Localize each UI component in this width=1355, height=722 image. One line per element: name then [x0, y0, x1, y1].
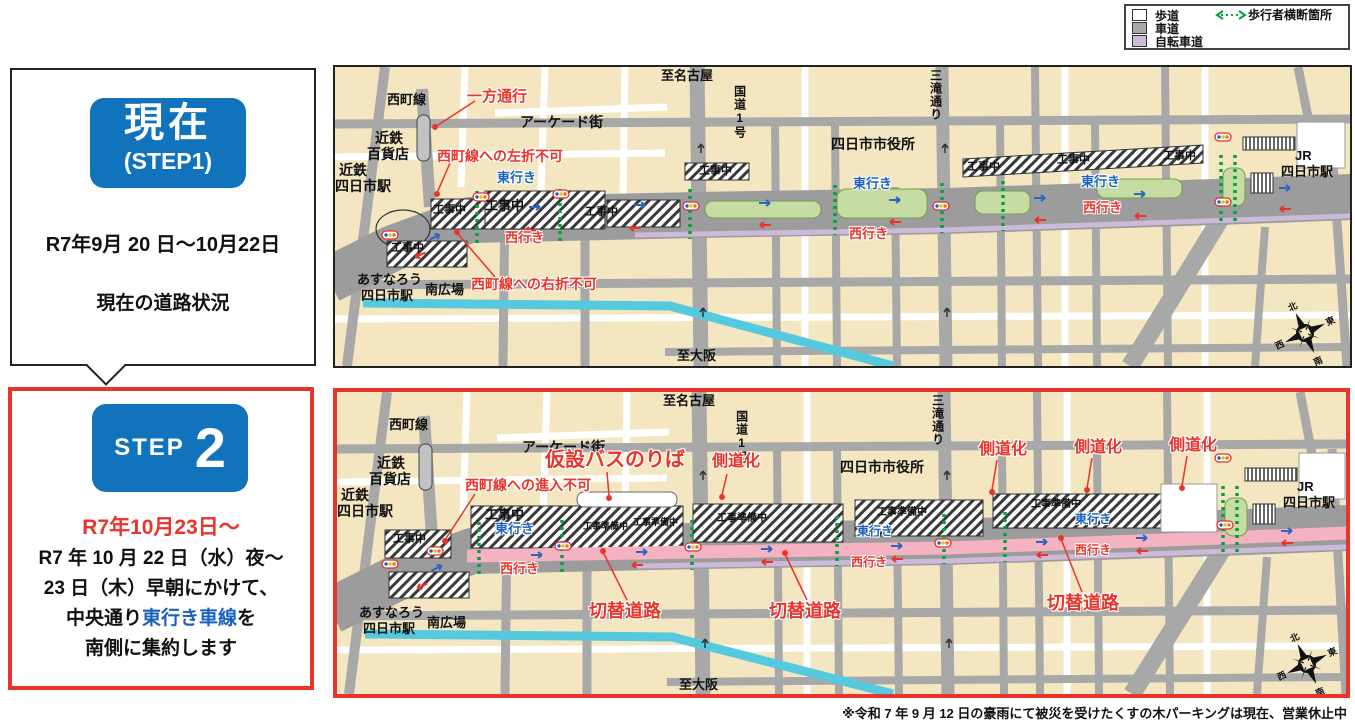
eastbound-label: 東行き	[1075, 513, 1111, 526]
bikelane-swatch	[1132, 35, 1147, 47]
side-road-label: 側道化	[1169, 438, 1217, 455]
westbound-label: 西行き	[1075, 544, 1111, 557]
street-island	[419, 444, 432, 490]
temp-bus-stop-label: 仮設バスのりば	[545, 450, 685, 471]
kintetsu-station-label2: 四日市駅	[337, 504, 393, 519]
city-hall-label: 四日市市役所	[831, 137, 915, 152]
arcade-label: アーケード街	[520, 115, 603, 130]
eastbound-label: 東行き	[495, 522, 534, 536]
kintetsu-station-label: 近鉄	[341, 488, 369, 503]
step1-callout: 現在 (STEP1) R7年9月 20 日～10月22日 現在の道路状況	[10, 68, 316, 366]
jr-platform	[1253, 504, 1275, 524]
westbound-label: 西行き	[849, 227, 888, 241]
no-right-turn-label: 西町線への右折不可	[471, 277, 597, 292]
legend-row-sidewalk: 歩道	[1132, 9, 1179, 22]
legend-label: 歩行者横断箇所	[1248, 8, 1332, 22]
step2-line2: 23 日（木）早朝にかけて、	[12, 574, 310, 604]
step2-description: R7 年 10 月 22 日（水）夜～ 23 日（木）早朝にかけて、 中央通り東…	[12, 544, 310, 664]
switch-road-label: 切替道路	[1047, 594, 1119, 613]
kintetsu-station-label: 近鉄	[339, 163, 367, 178]
jr-station-label: 四日市駅	[1281, 165, 1333, 179]
step1-description: 現在の道路状況	[12, 288, 314, 315]
to-osaka-label: 至大阪	[677, 349, 716, 363]
asunarou-label: あすなろう	[359, 606, 424, 620]
jr-platform	[1251, 173, 1273, 193]
step2-period: R7年10月23日～	[12, 511, 310, 541]
nishimachi-line-label: 西町線	[387, 93, 426, 107]
step2-line3: 中央通り東行き車線を	[12, 604, 310, 634]
eastbound-label: 東行き	[1081, 175, 1120, 189]
side-road-label: 側道化	[712, 454, 760, 471]
kintetsu-dept-label: 近鉄	[377, 456, 405, 471]
legend: 歩道 車道 自転車道 歩行者横断箇所	[1124, 4, 1350, 50]
crossing-arrow-icon	[1214, 9, 1248, 21]
footnote: ※令和 7 年 9 月 12 日の豪雨にて被災を受けたくすの木パーキングは現在、…	[842, 703, 1347, 722]
eastbound-label: 東行き	[857, 525, 893, 538]
step2-badge-num: 2	[195, 416, 226, 479]
westbound-label: 西行き	[851, 556, 887, 569]
kintetsu-dept-label2: 百貨店	[367, 147, 409, 162]
asunarou-label2: 四日市駅	[361, 289, 413, 303]
construction-label: 工事中	[391, 243, 424, 255]
construction-label: 工事中	[485, 199, 524, 213]
map-step2: 北 東 南 西 西町線 アーケード街 近鉄 百貨店 近鉄 四日市駅 あすなろう …	[333, 388, 1350, 698]
city-hall-label: 四日市市役所	[840, 460, 924, 475]
construction-label: 工事中	[393, 534, 426, 546]
map-step1: 北 東 南 西 西町線 アーケード街 近鉄 百貨店 近鉄 四日市駅 あすなろう …	[333, 65, 1352, 368]
step1-period: R7年9月 20 日～10月22日	[12, 228, 314, 257]
construction-label: 工事中	[967, 162, 1000, 174]
construction-label: 工事中	[585, 207, 618, 219]
westbound-label: 西行き	[505, 231, 544, 245]
closed-parking-block	[1161, 484, 1217, 532]
construction-label: 工事中	[1057, 155, 1090, 167]
construction-label: 工事中	[1163, 151, 1196, 163]
page: 歩道 車道 自転車道 歩行者横断箇所 現在 (STEP1) R7年9月 20 日…	[0, 0, 1355, 722]
construction-prep-label: 工事準備中	[1031, 500, 1081, 511]
temp-bus-bay	[577, 492, 677, 507]
construction-label: 工事中	[485, 508, 524, 522]
jr-label: JR	[1297, 480, 1314, 494]
construction-label: 工事中	[699, 166, 732, 178]
step2-badge: STEP2	[92, 404, 248, 492]
construction-prep-label: 工事準備中	[633, 518, 678, 527]
one-way-label: 一方通行	[467, 89, 527, 105]
eastbound-label: 東行き	[853, 177, 892, 191]
construction-label: 工事中	[433, 205, 466, 217]
no-entry-label: 西町線への進入不可	[465, 478, 591, 493]
route1-label: 国道1号	[733, 85, 746, 139]
side-road-label: 側道化	[1074, 440, 1122, 457]
switch-road-label: 切替道路	[769, 602, 841, 621]
mitaki-dori-label: 三滝通り	[929, 69, 942, 121]
no-left-turn-label: 西町線への左折不可	[437, 149, 563, 164]
minami-plaza-label: 南広場	[427, 616, 466, 630]
nishimachi-line-label: 西町線	[389, 418, 428, 432]
roadway-swatch	[1132, 22, 1147, 34]
legend-row-crossing: 歩行者横断箇所	[1214, 9, 1332, 22]
jr-platform	[1243, 137, 1295, 150]
eastbound-label: 東行き	[497, 171, 536, 185]
westbound-label: 西行き	[1083, 201, 1122, 215]
to-nagoya-label: 至名古屋	[661, 69, 713, 83]
construction-prep-label: 工事準備中	[717, 514, 767, 525]
construction-prep-label: 工事準備中	[877, 508, 927, 519]
minami-plaza-label: 南広場	[425, 283, 464, 297]
jr-label: JR	[1295, 149, 1312, 163]
street-island	[417, 115, 430, 161]
legend-label: 自転車道	[1155, 35, 1203, 49]
kintetsu-dept-label: 近鉄	[375, 131, 403, 146]
mitaki-dori-label: 三滝通り	[931, 394, 944, 446]
construction-prep-label: 工事準備中	[583, 522, 628, 531]
asunarou-label2: 四日市駅	[363, 622, 415, 636]
to-osaka-label: 至大阪	[679, 678, 718, 692]
step1-badge-sub: (STEP1)	[90, 148, 246, 174]
jr-platform	[1245, 468, 1297, 481]
legend-label: 車道	[1155, 22, 1179, 36]
legend-row-roadway: 車道	[1132, 22, 1179, 35]
kintetsu-station-label2: 四日市駅	[335, 179, 391, 194]
step2-line1: R7 年 10 月 22 日（水）夜～	[12, 544, 310, 574]
map1-canvas: 北 東 南 西	[335, 67, 1350, 366]
westbound-label: 西行き	[500, 562, 539, 576]
step2-badge-step: STEP	[114, 434, 185, 461]
switch-road-label: 切替道路	[589, 602, 661, 621]
legend-row-bikelane: 自転車道	[1132, 35, 1203, 48]
step2-box: STEP2 R7年10月23日～ R7 年 10 月 22 日（水）夜～ 23 …	[8, 387, 314, 690]
asunarou-label: あすなろう	[357, 273, 422, 287]
side-road-label: 側道化	[979, 442, 1027, 459]
step2-line4: 南側に集約します	[12, 634, 310, 664]
legend-label: 歩道	[1155, 9, 1179, 23]
to-nagoya-label: 至名古屋	[663, 394, 715, 408]
step1-badge-title: 現在	[90, 98, 246, 148]
sidewalk-swatch	[1132, 9, 1147, 21]
jr-station-label: 四日市駅	[1283, 496, 1335, 510]
kintetsu-dept-label2: 百貨店	[369, 472, 411, 487]
step1-badge: 現在 (STEP1)	[90, 98, 246, 188]
